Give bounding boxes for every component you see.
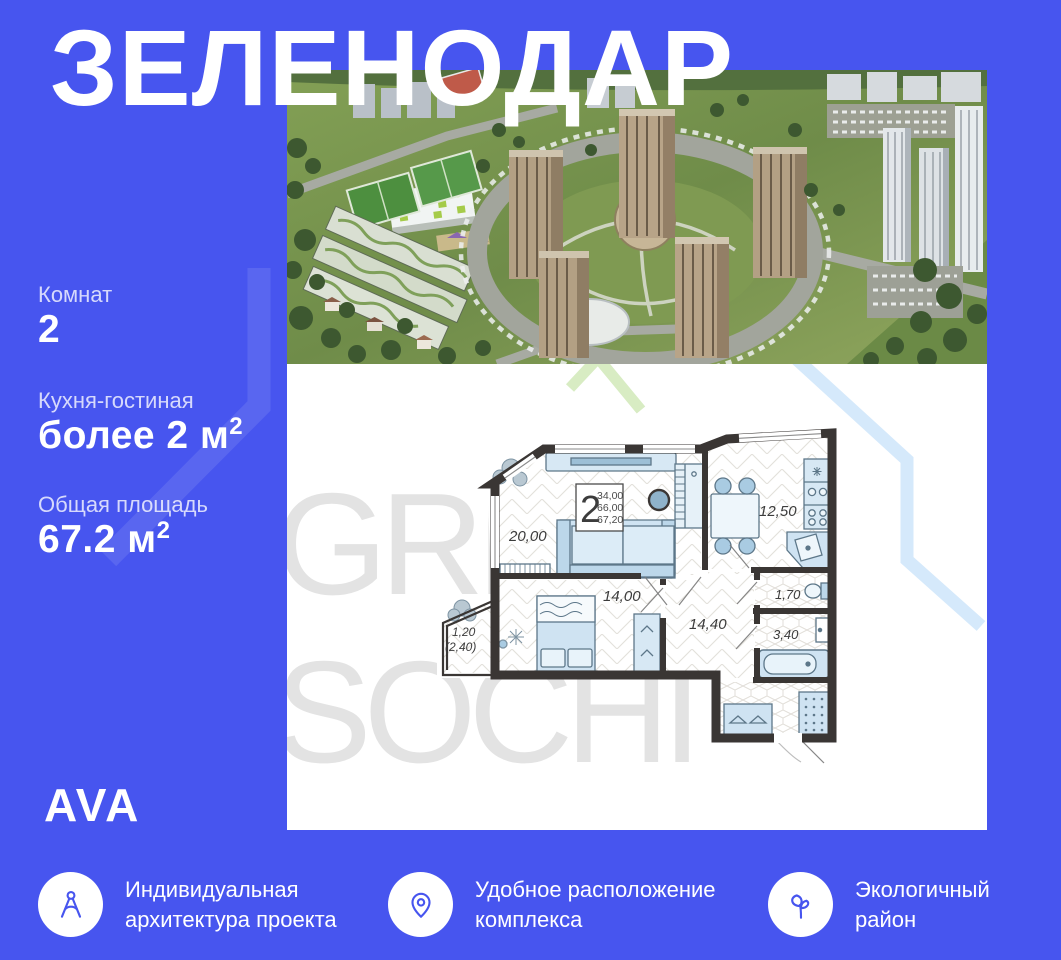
- floor-plan: 2 34,00 66,00 67,20 20,00 12,50 14,00 14…: [287, 364, 987, 830]
- feature-location-text: Удобное расположениекомплекса: [475, 875, 716, 935]
- stat-total-area-value: 67.2 м: [38, 518, 157, 561]
- balcony-area-label-1: 1,20: [452, 625, 476, 639]
- stat-kitchen-living-label: Кухня-гостиная: [38, 389, 243, 413]
- feature-ecology-text: Экологичныйрайон: [855, 875, 990, 935]
- wc-area-label: 1,70: [775, 587, 801, 602]
- feature-ecology: Экологичныйрайон: [768, 872, 990, 937]
- real-estate-card: ЗЕЛЕНОДАР: [0, 0, 1061, 960]
- project-title: ЗЕЛЕНОДАР: [50, 14, 734, 122]
- stat-rooms-label: Комнат: [38, 283, 112, 307]
- location-pin-icon: [404, 888, 438, 922]
- feature-architecture-text: Индивидуальнаяархитектура проекта: [125, 875, 337, 935]
- brand-logo: AVA: [44, 778, 140, 832]
- hall-area-label: 14,40: [689, 616, 727, 633]
- feature-architecture: Индивидуальнаяархитектура проекта: [38, 872, 337, 937]
- feature-ecology-circle: [768, 872, 833, 937]
- stat-total-area-label: Общая площадь: [38, 493, 208, 517]
- stat-kitchen-living: Кухня-гостиная более 2 м2: [38, 389, 243, 459]
- kitchen-area-label: 12,50: [759, 503, 797, 520]
- bedroom-area-label: 14,00: [603, 588, 641, 605]
- feature-location: Удобное расположениекомплекса: [388, 872, 716, 937]
- feature-architecture-circle: [38, 872, 103, 937]
- bath-area-label: 3,40: [773, 627, 799, 642]
- area-living-rooms: 34,00: [597, 490, 623, 502]
- plan-stat-box: 2 34,00 66,00 67,20: [576, 484, 623, 531]
- floor-plan-panel: GREENSOCHI: [287, 364, 987, 830]
- sprout-icon: [784, 888, 818, 922]
- area-total: 67,20: [597, 514, 623, 526]
- stat-total-area: Общая площадь 67.2 м2: [38, 493, 208, 563]
- stat-rooms-value: 2: [38, 308, 60, 351]
- stat-kitchen-living-value: более 2 м: [38, 414, 229, 457]
- area-without-balcony: 66,00: [597, 502, 623, 514]
- feature-location-circle: [388, 872, 453, 937]
- stat-rooms: Комнат 2: [38, 283, 112, 353]
- living-area-label: 20,00: [508, 528, 547, 545]
- balcony-area-label-2: (2,40): [445, 640, 476, 654]
- drafting-compass-icon: [54, 888, 88, 922]
